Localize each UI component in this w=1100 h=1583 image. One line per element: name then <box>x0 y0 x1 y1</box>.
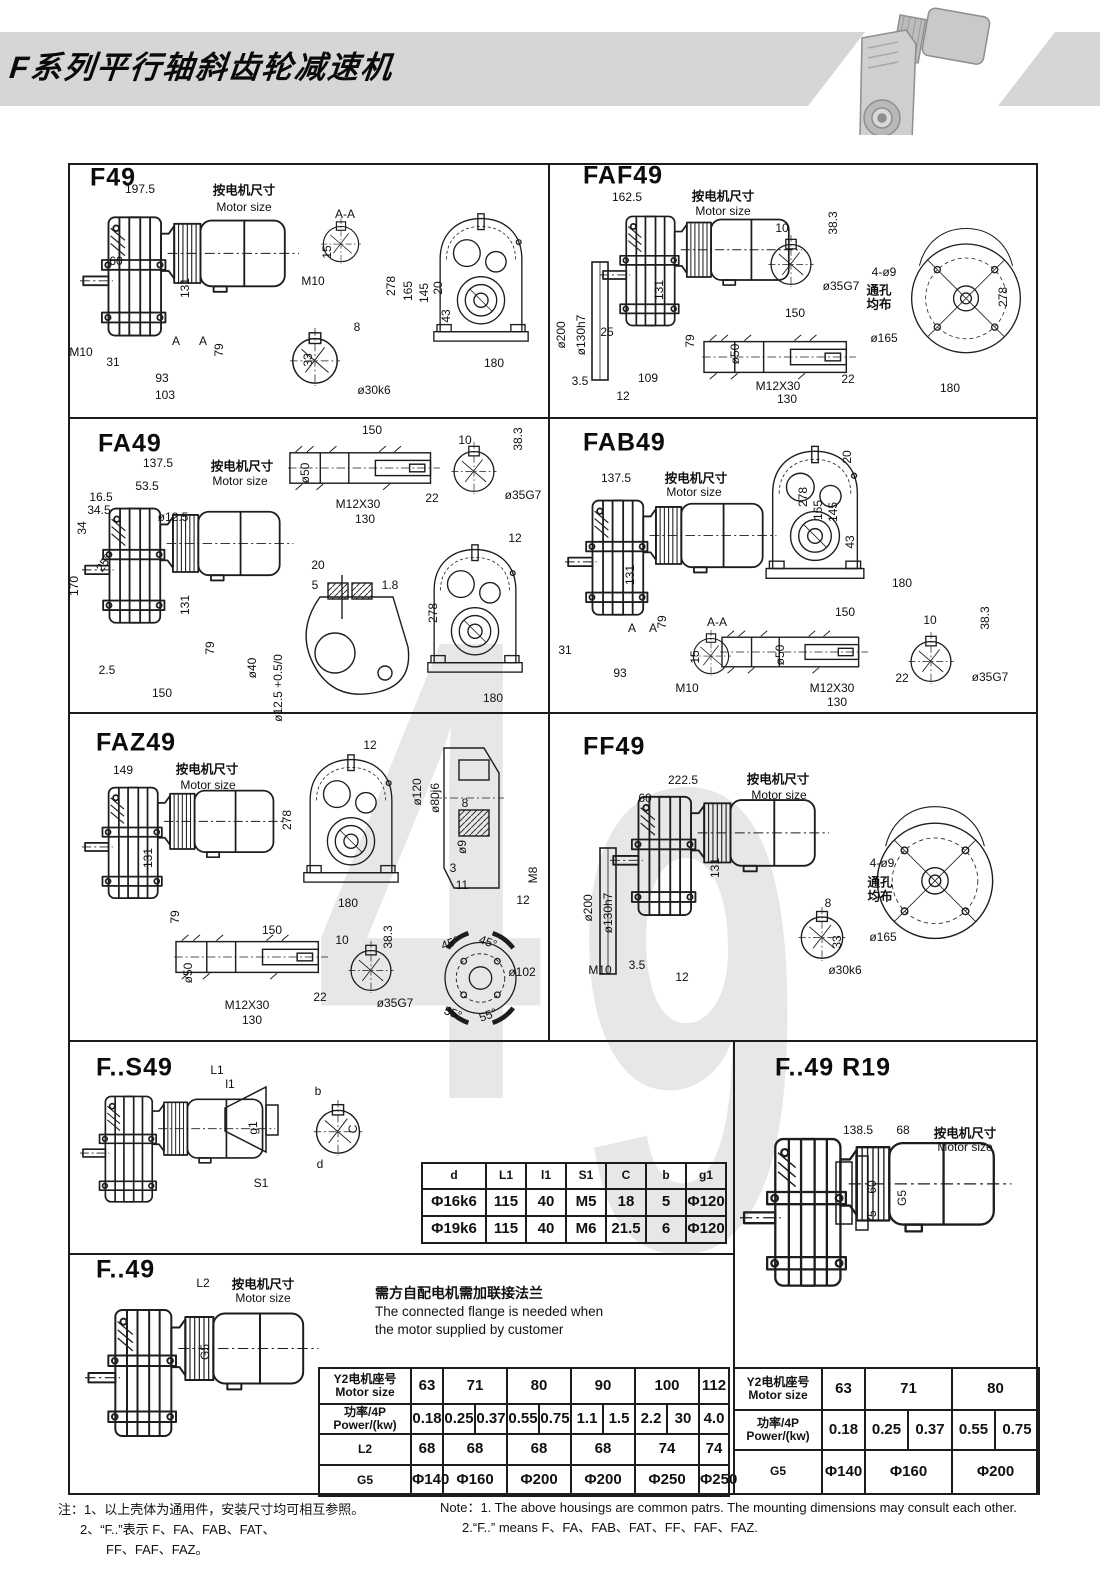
table-cell: Φ160 <box>865 1450 952 1494</box>
dim-label: 79 <box>203 641 217 654</box>
table-cell: Φ140 <box>411 1465 443 1496</box>
dim-label: 278 <box>796 487 810 507</box>
dim-label: 278 <box>384 276 398 296</box>
table-cell: 68 <box>571 1434 635 1465</box>
table-cell: 90 <box>571 1368 635 1404</box>
dim-label: 11 <box>456 878 468 892</box>
table-cell: 74 <box>635 1434 699 1465</box>
table-cell: Φ160 <box>443 1465 507 1496</box>
dim-label: M10 <box>69 345 92 359</box>
dim-label: 170 <box>67 576 81 596</box>
table-cell: 功率/4PPower/(kw) <box>319 1404 411 1434</box>
dim-label: ø30k6 <box>357 383 390 397</box>
table-cell: 0.18 <box>822 1410 865 1450</box>
dim-label: 278 <box>426 603 440 623</box>
flange-note-cn: 需方自配电机需加联接法兰 <box>375 1284 603 1303</box>
table-cell: 0.25 <box>865 1410 908 1450</box>
table-cell: 5 <box>646 1189 686 1216</box>
table-cell: 63 <box>822 1368 865 1410</box>
table-cell: 0.55 <box>507 1404 539 1434</box>
table-cell: 30 <box>667 1404 699 1434</box>
table-cell: M6 <box>566 1216 606 1243</box>
dim-label: 60 <box>865 1180 879 1193</box>
catalog-page: F系列平行轴斜齿轮减速机 4 9 <box>0 0 1100 1583</box>
table-cell: 68 <box>411 1434 443 1465</box>
flange-note-en2: the motor supplied by customer <box>375 1321 603 1339</box>
table-cell: 18 <box>606 1189 646 1216</box>
footer-note-cn-line2: 2、“F..”表示 F、FA、FAB、FAT、 <box>58 1520 458 1540</box>
table-cell: Φ140 <box>822 1450 865 1494</box>
dim-label: A <box>199 334 207 348</box>
dim-label: 45° <box>439 933 461 952</box>
dim-label: 45° <box>477 932 499 951</box>
dim-label: A-A <box>707 615 727 629</box>
table-cell: C <box>606 1163 646 1189</box>
table-cell: 74 <box>699 1434 729 1465</box>
dim-label: 93 <box>155 371 168 385</box>
table-cell: 80 <box>952 1368 1039 1410</box>
dim-label: 150 <box>152 686 172 700</box>
dim-label: ø9 <box>455 840 469 854</box>
dim-label: A-A <box>335 207 355 221</box>
dim-label: C <box>346 1125 360 1134</box>
dim-label: 79 <box>683 334 697 347</box>
dim-label: G5 <box>198 1344 212 1360</box>
dim-label: ø35G7 <box>823 279 860 293</box>
panel-title: F..49 R19 <box>775 1054 891 1083</box>
dim-label: 180 <box>338 896 358 910</box>
table-cell: 0.37 <box>475 1404 507 1434</box>
dim-label: 10 <box>775 221 788 235</box>
dim-label: 130 <box>827 695 847 709</box>
dim-label: Motor size <box>235 1291 290 1305</box>
dim-label: 38.3 <box>381 925 395 948</box>
table-cell: 0.25 <box>443 1404 475 1434</box>
dim-label: 162.5 <box>612 190 642 204</box>
table-cell: 1.1 <box>571 1404 603 1434</box>
dim-label: 53.5 <box>135 479 158 493</box>
panel-title: FAF49 <box>583 162 663 191</box>
dim-label: Motor size <box>937 1140 992 1154</box>
dim-label: 145 <box>417 283 431 303</box>
dim-label: L2 <box>196 1276 209 1290</box>
flange-note: 需方自配电机需加联接法兰 The connected flange is nee… <box>375 1284 603 1339</box>
dim-label: Motor size <box>666 485 721 499</box>
dim-label: ø165 <box>869 930 896 944</box>
dim-label: 1.8 <box>382 578 399 592</box>
dim-label: 5 <box>312 578 319 592</box>
dim-label: 31 <box>558 643 571 657</box>
dim-label: 197.5 <box>125 182 155 196</box>
motor-table-r19: Y2电机座号Motor size637180功率/4PPower/(kw)0.1… <box>733 1367 1040 1495</box>
dim-label: 按电机尺寸 <box>747 769 810 788</box>
dim-label: 按电机尺寸 <box>934 1123 997 1142</box>
dim-label: 16.5 <box>89 490 112 504</box>
dim-label: 12 <box>508 531 521 545</box>
table-cell: 0.37 <box>908 1410 952 1450</box>
dim-label: 20 <box>431 281 445 294</box>
dim-label: 55° <box>442 1003 464 1022</box>
dim-label: Motor size <box>751 788 806 802</box>
dim-label: 131 <box>141 848 155 868</box>
dim-label: M10 <box>301 274 324 288</box>
table-cell: Φ16k6 <box>422 1189 486 1216</box>
dim-label: l1 <box>225 1077 234 1091</box>
footer-note-en-line2: 2.“F..” means F、FA、FAB、FAT、FF、FAF、FAZ. <box>440 1518 1090 1538</box>
dim-label: 55° <box>477 1005 499 1024</box>
table-cell: Φ120 <box>686 1189 726 1216</box>
dim-label: 79 <box>212 343 226 356</box>
dim-label: 3.5 <box>572 374 589 388</box>
dim-label: 3 <box>450 861 457 875</box>
dim-label: M12X30 <box>336 497 381 511</box>
footer-note-en-line1: Note：1. The above housings are common pa… <box>440 1498 1090 1518</box>
panel-title: FF49 <box>583 733 645 762</box>
dim-label: 93 <box>613 666 626 680</box>
table-cell: 0.18 <box>411 1404 443 1434</box>
dim-label: 150 <box>362 423 382 437</box>
dim-label: A <box>649 621 657 635</box>
table-cell: 71 <box>865 1368 952 1410</box>
dim-label: 25° <box>93 552 115 575</box>
dim-label: 278 <box>996 287 1010 307</box>
dim-label: 22 <box>895 671 908 685</box>
table-cell: 6 <box>646 1216 686 1243</box>
dim-label: 137.5 <box>601 471 631 485</box>
table-cell: 0.55 <box>952 1410 995 1450</box>
dim-label: 12 <box>616 389 629 403</box>
footer-note-cn-line3: FF、FAF、FAZ。 <box>58 1540 458 1560</box>
table-cell: L1 <box>486 1163 526 1189</box>
table-cell: 21.5 <box>606 1216 646 1243</box>
dim-label: 109 <box>638 371 658 385</box>
dim-label: 12 <box>516 893 529 907</box>
dim-label: ø40 <box>245 658 259 679</box>
dim-label: 43 <box>843 535 857 548</box>
footer-note-en: Note：1. The above housings are common pa… <box>440 1498 1090 1538</box>
table-cell: 71 <box>443 1368 507 1404</box>
table-cell: 功率/4PPower/(kw) <box>734 1410 822 1450</box>
dim-label: 165 <box>401 281 415 301</box>
panel-title: FAZ49 <box>96 729 176 758</box>
dim-label: 131 <box>652 280 666 300</box>
dim-label: 10 <box>923 613 936 627</box>
dim-label: 278 <box>280 810 294 830</box>
dim-label: 20 <box>311 558 324 572</box>
table-cell: 40 <box>526 1189 566 1216</box>
dim-label: 均布 <box>867 886 892 905</box>
dim-label: 22 <box>425 491 438 505</box>
table-cell: Φ250 <box>699 1465 729 1496</box>
dim-label: M12X30 <box>810 681 855 695</box>
dim-label: 145 <box>826 502 840 522</box>
dim-label: ø130h7 <box>601 893 615 934</box>
motor-table-main: Y2电机座号Motor size63718090100112功率/4PPower… <box>318 1367 730 1497</box>
dim-label: 3.5 <box>629 958 646 972</box>
dim-label: ø130h7 <box>574 315 588 356</box>
dim-label: 4-ø9 <box>870 856 895 870</box>
dim-label: 38.3 <box>511 427 525 450</box>
table-cell: 68 <box>507 1434 571 1465</box>
dim-label: b <box>315 1084 322 1098</box>
dim-label: 12 <box>675 970 688 984</box>
dim-label: 150 <box>835 605 855 619</box>
dim-label: Motor size <box>212 474 267 488</box>
dim-label: 按电机尺寸 <box>232 1274 295 1293</box>
table-cell: G5 <box>319 1465 411 1496</box>
dim-label: 43 <box>439 309 453 322</box>
table-cell: Y2电机座号Motor size <box>319 1368 411 1404</box>
panel-title: F..49 <box>96 1256 155 1285</box>
dim-label: 按电机尺寸 <box>213 180 276 199</box>
dim-label: 10 <box>458 433 471 447</box>
dim-label: 22 <box>841 372 854 386</box>
table-cell: 112 <box>699 1368 729 1404</box>
dim-label: 15 <box>320 245 334 258</box>
dim-label: 4-ø9 <box>872 265 897 279</box>
dim-label: 按电机尺寸 <box>176 759 239 778</box>
labels-layer: F49197.5按电机尺寸Motor sizeA-A15M1060131M103… <box>0 0 1100 1583</box>
dim-label: M8 <box>526 867 540 884</box>
table-cell: b <box>646 1163 686 1189</box>
dim-label: Motor size <box>216 200 271 214</box>
table-cell: 68 <box>443 1434 507 1465</box>
dim-label: M12X30 <box>756 379 801 393</box>
dim-label: 按电机尺寸 <box>692 186 755 205</box>
table-cell: Φ200 <box>952 1450 1039 1494</box>
table-cell: L2 <box>319 1434 411 1465</box>
dim-label: ø35G7 <box>377 996 414 1010</box>
dim-label: 131 <box>178 278 192 298</box>
dim-label: 149 <box>113 763 133 777</box>
dim-label: 20 <box>840 450 854 463</box>
dim-label: 165 <box>811 500 825 520</box>
dim-label: 38.3 <box>826 211 840 234</box>
dim-label: ø80j6 <box>428 783 442 813</box>
dim-label: A <box>172 334 180 348</box>
table-cell: 100 <box>635 1368 699 1404</box>
panel-title: FA49 <box>98 430 162 459</box>
dim-label: 180 <box>483 691 503 705</box>
dim-label: 8 <box>825 896 832 910</box>
footer-note-cn: 注：1、以上壳体为通用件，安装尺寸均可相互参照。 2、“F..”表示 F、FA、… <box>58 1500 458 1560</box>
dim-label: 130 <box>242 1013 262 1027</box>
table-cell: Y2电机座号Motor size <box>734 1368 822 1410</box>
dim-label: 68 <box>896 1123 909 1137</box>
dim-label: Motor size <box>695 204 750 218</box>
dim-label: 103 <box>155 388 175 402</box>
dim-label: 8 <box>462 796 469 810</box>
footer-note-cn-line1: 注：1、以上壳体为通用件，安装尺寸均可相互参照。 <box>58 1500 458 1520</box>
dim-label: ø50 <box>298 463 312 484</box>
dim-label: 131 <box>708 858 722 878</box>
table-cell: M5 <box>566 1189 606 1216</box>
dim-label: 34.5 <box>87 503 110 517</box>
table-cell: d <box>422 1163 486 1189</box>
dim-label: 150 <box>262 923 282 937</box>
table-cell: S1 <box>566 1163 606 1189</box>
dim-label: S1 <box>254 1176 269 1190</box>
dim-label: 60 <box>109 254 122 268</box>
table-cell: 2.2 <box>635 1404 667 1434</box>
dim-label: 31 <box>106 355 119 369</box>
dim-label: 79 <box>655 615 669 628</box>
dim-label: ø30k6 <box>828 963 861 977</box>
dim-label: 8 <box>354 320 361 334</box>
dim-label: 180 <box>940 381 960 395</box>
dim-label: ø200 <box>554 321 568 348</box>
dim-label: 222.5 <box>668 773 698 787</box>
table-cell: 1.5 <box>603 1404 635 1434</box>
dim-label: 10 <box>335 933 348 947</box>
table-cell: Φ200 <box>571 1465 635 1496</box>
dim-label: ø50 <box>728 344 742 365</box>
dim-label: L1 <box>210 1063 223 1077</box>
dim-label: M10 <box>675 681 698 695</box>
table-cell: Φ19k6 <box>422 1216 486 1243</box>
table-cell: G5 <box>734 1450 822 1494</box>
dim-label: 15 <box>688 650 702 663</box>
dim-label: d <box>317 1157 324 1171</box>
dim-label: ø165 <box>870 331 897 345</box>
dim-label: 22 <box>313 990 326 1004</box>
panel-title: FAB49 <box>583 429 666 458</box>
dim-label: 130 <box>355 512 375 526</box>
dim-label: ø102 <box>508 965 535 979</box>
dim-label: Motor size <box>180 778 235 792</box>
dim-label: 180 <box>892 576 912 590</box>
dim-label: 79 <box>168 910 182 923</box>
dim-label: 2.5 <box>99 663 116 677</box>
panel-title: F..S49 <box>96 1054 173 1083</box>
dim-label: 均布 <box>866 294 891 313</box>
dim-label: 180 <box>484 356 504 370</box>
flange-note-en1: The connected flange is needed when <box>375 1303 603 1321</box>
table-cell: 115 <box>486 1189 526 1216</box>
dim-label: ø50 <box>181 963 195 984</box>
dim-label: ø200 <box>581 894 595 921</box>
dim-label: 38.3 <box>978 606 992 629</box>
dim-label: 12 <box>363 738 376 752</box>
table-cell: g1 <box>686 1163 726 1189</box>
dim-label: G5 <box>895 1190 909 1206</box>
dim-label: 138.5 <box>843 1123 873 1137</box>
table-cell: 115 <box>486 1216 526 1243</box>
dim-label: A <box>628 621 636 635</box>
dim-label: ø50 <box>773 645 787 666</box>
dim-label: 150 <box>785 306 805 320</box>
table-cell: 63 <box>411 1368 443 1404</box>
dim-label: 60 <box>638 791 651 805</box>
dim-label: 按电机尺寸 <box>211 456 274 475</box>
dim-label: 137.5 <box>143 456 173 470</box>
table-cell: 0.75 <box>539 1404 571 1434</box>
s49-dim-table: dL1l1S1Cbg1Φ16k611540M5185Φ120Φ19k611540… <box>421 1162 727 1244</box>
dim-label: M12X30 <box>225 998 270 1012</box>
dim-label: ø35G7 <box>505 488 542 502</box>
dim-label: 34 <box>75 521 89 534</box>
table-cell: 80 <box>507 1368 571 1404</box>
table-cell: 0.75 <box>995 1410 1039 1450</box>
dim-label: 131 <box>623 565 637 585</box>
table-cell: l1 <box>526 1163 566 1189</box>
dim-label: g1 <box>246 1121 260 1134</box>
dim-label: ø120 <box>410 778 424 805</box>
table-cell: 40 <box>526 1216 566 1243</box>
dim-label: ø35G7 <box>972 670 1009 684</box>
dim-label: 131 <box>178 595 192 615</box>
dim-label: 25 <box>600 325 613 339</box>
dim-label: 130 <box>777 392 797 406</box>
dim-label: ø12.5 <box>158 510 189 524</box>
dim-label: 33 <box>301 353 315 366</box>
dim-label: 按电机尺寸 <box>665 468 728 487</box>
table-cell: Φ200 <box>507 1465 571 1496</box>
table-cell: Φ120 <box>686 1216 726 1243</box>
dim-label: ø12.5 +0.5/0 <box>271 654 285 722</box>
dim-label: 33 <box>830 935 844 948</box>
table-cell: Φ250 <box>635 1465 699 1496</box>
dim-label: 75 <box>865 1210 879 1223</box>
dim-label: M10 <box>588 963 611 977</box>
table-cell: 4.0 <box>699 1404 729 1434</box>
